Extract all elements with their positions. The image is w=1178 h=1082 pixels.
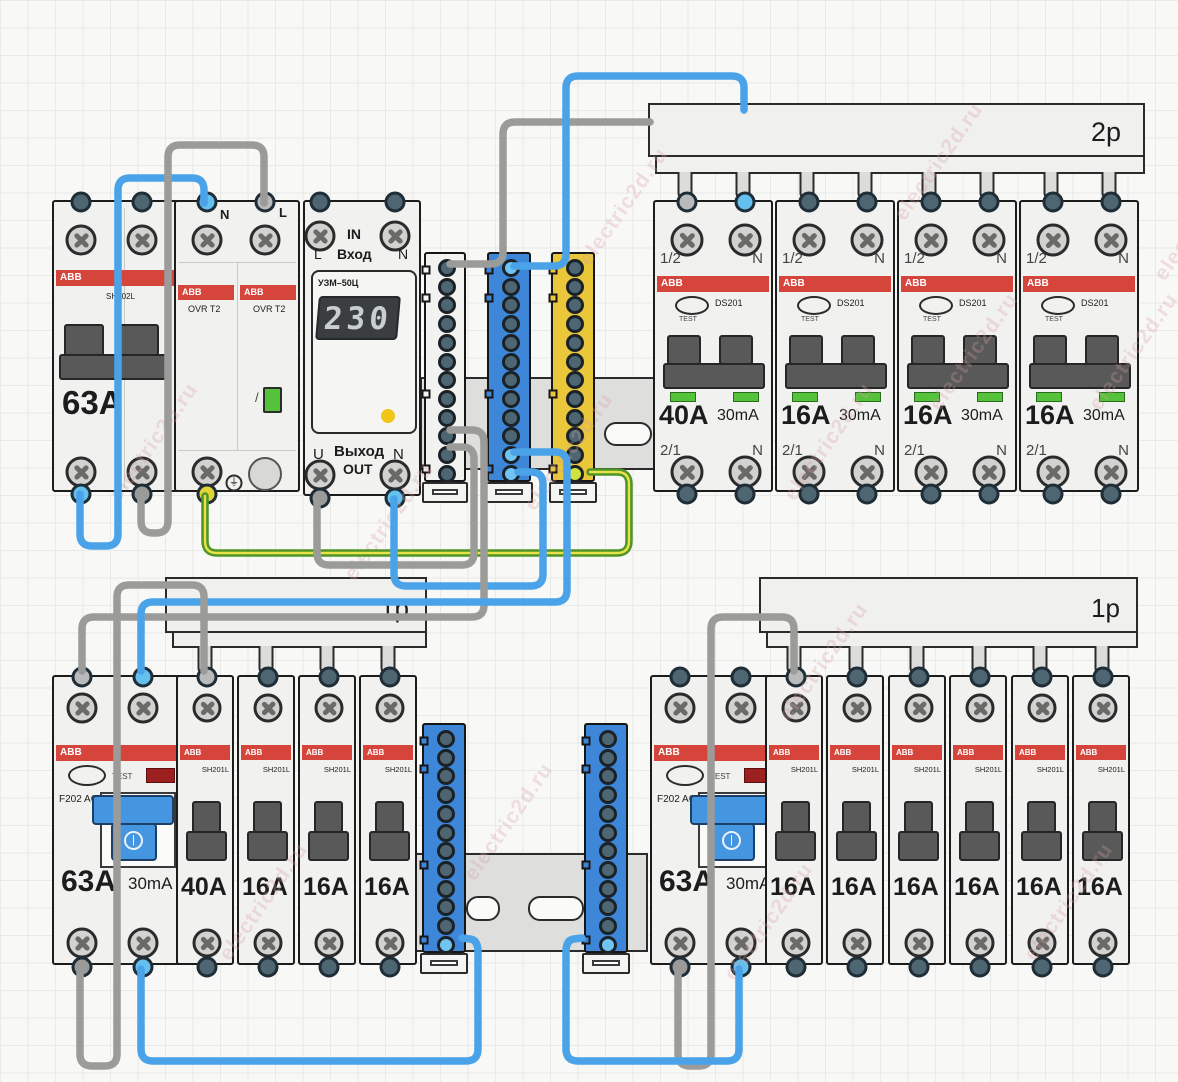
terminal-screw [193,929,222,958]
breaker-handle[interactable] [667,335,701,365]
abb-brand-band: ABB [180,745,230,760]
status-indicator [733,392,759,402]
sensitivity-label: 30mA [128,874,172,894]
busbar-terminal[interactable] [599,880,617,898]
breaker-handle-base[interactable] [663,363,765,389]
busbar-terminal[interactable] [438,353,456,371]
breaker-handle-base[interactable] [369,831,410,861]
breaker-handle-base[interactable] [959,831,1000,861]
model-label: OVR T2 [253,304,285,314]
terminal-cap[interactable] [799,192,820,213]
busbar-terminal[interactable] [437,936,455,954]
rating-label: 63A [62,384,123,422]
strip-notch [420,765,429,774]
top-left-terminal-label: 1/2 [1026,250,1047,267]
breaker-sh201l-left-3[interactable]: ABB SH201L 16A [298,675,356,965]
breaker-sh201l-right-6[interactable]: ABB SH201L 16A [1072,675,1130,965]
foot-slot [559,489,587,495]
model-label: УЗМ–50Ц [318,278,358,288]
terminal-cap[interactable] [979,484,1000,505]
breaker-handle[interactable] [963,335,997,365]
terminal-cap[interactable] [132,192,153,213]
rcbo-ds201-2[interactable]: 1/2 N ABB TEST DS201 16A 30mA 2/1 N [775,200,895,492]
rating-label: 63A [659,865,714,899]
abb-brand-band: ABB [241,745,291,760]
breaker-sh201l-left-2[interactable]: ABB SH201L 16A [237,675,295,965]
abb-brand-band: ABB [1015,745,1065,760]
rcbo-ds201-1[interactable]: 1/2 N ABB TEST DS201 40A 30mA 2/1 N [653,200,773,492]
busbar-terminal[interactable] [502,371,520,389]
busbar-terminal[interactable] [438,465,456,483]
rcd-f202-left[interactable]: ABB TEST F202 AC | 63A 30mA [52,675,195,965]
terminal-cap[interactable] [735,484,756,505]
rating-label: 16A [781,400,831,431]
abb-brand-band: ABB [240,285,296,300]
breaker-handle[interactable] [64,324,104,356]
terminal-screw [66,225,97,256]
terminal-cap[interactable] [258,957,279,978]
bottom-left-terminal-label: 2/1 [1026,442,1047,459]
busbar-terminal[interactable] [599,786,617,804]
terminal-screw [1089,694,1118,723]
terminal-screw [128,928,159,959]
breaker-handle[interactable] [789,335,823,365]
sensitivity-label: 30mA [839,407,881,425]
terminal-cap[interactable] [847,957,868,978]
model-label: SH201L [975,765,1002,774]
panel-diagram-canvas: 2p 1p 1p ABB SH202L 63A N L ABB [0,0,1178,1082]
comb-busbar-1p-right[interactable]: 1p [759,577,1138,633]
test-label: TEST [1045,316,1063,323]
busbar-terminal[interactable] [437,898,455,916]
rating-label: 40A [659,400,709,431]
test-button[interactable] [68,765,106,786]
earth-symbol: ⏚ [226,475,243,492]
terminal-cap[interactable] [1032,957,1053,978]
rating-label: 16A [1077,873,1123,902]
comb-busbar-1p-right-lip [766,631,1138,648]
busbar-terminal[interactable] [438,334,456,352]
breaker-sh201l-right-3[interactable]: ABB SH201L 16A [888,675,946,965]
strip-notch [485,390,494,399]
indicator-mark: / [255,390,259,405]
busbar-terminal[interactable] [502,390,520,408]
busbar-terminal[interactable] [502,334,520,352]
status-indicator [1099,392,1125,402]
in-ru-label: Вход [337,246,372,262]
model-label: SH201L [202,765,229,774]
abb-brand-band: ABB [769,745,819,760]
status-led [381,409,395,423]
busbar-terminal[interactable] [502,296,520,314]
foot-slot [432,489,458,495]
out-ru-label: Выход [334,443,384,460]
busbar-terminal[interactable] [437,824,455,842]
terminal-cap[interactable] [1093,957,1114,978]
strip-notch [422,465,431,474]
strip-notch [582,737,591,746]
handle-screw: | [722,831,741,850]
bottom-right-terminal-label: N [874,442,885,459]
strip-notch [549,390,558,399]
top-right-terminal-label: N [874,250,885,267]
breaker-sh201l-right-5[interactable]: ABB SH201L 16A [1011,675,1069,965]
sensitivity-label: 30mA [726,874,770,894]
busbar-terminal[interactable] [438,409,456,427]
breaker-handle-base[interactable] [186,831,227,861]
busbar-terminal[interactable] [599,767,617,785]
module-divider [237,262,238,450]
breaker-handle[interactable] [314,801,343,833]
relay-panel [311,270,417,434]
rating-label: 16A [770,873,816,902]
busbar-terminal[interactable] [566,315,584,333]
terminal-screw [67,928,98,959]
breaker-handle-base[interactable] [1082,831,1123,861]
strip-notch [422,294,431,303]
breaker-handle[interactable] [192,801,221,833]
strip-notch [549,294,558,303]
breaker-handle[interactable] [842,801,871,833]
breaker-sh201l-right-4[interactable]: ABB SH201L 16A [949,675,1007,965]
rcd-handle[interactable] [690,795,772,825]
busbar-terminal[interactable] [566,296,584,314]
breaker-handle[interactable] [375,801,404,833]
breaker-sh201l-left-1[interactable]: ABB SH201L 40A [176,675,234,965]
busbar-terminal[interactable] [438,371,456,389]
strip-notch [485,294,494,303]
busbar-terminal[interactable] [566,259,584,277]
terminal-cap[interactable] [921,484,942,505]
status-indicator [855,392,881,402]
busbar-terminal[interactable] [566,390,584,408]
model-label: OVR T2 [188,304,220,314]
top-left-terminal-label: 1/2 [904,250,925,267]
abb-brand-band: ABB [657,276,769,292]
rcbo-ds201-4[interactable]: 1/2 N ABB TEST DS201 16A 30mA 2/1 N [1019,200,1139,492]
breaker-handle[interactable] [253,801,282,833]
breaker-handle[interactable] [841,335,875,365]
busbar-terminal[interactable] [437,730,455,748]
round-knob[interactable] [248,457,282,491]
wire-l-white-strip-to-comb2p[interactable] [450,122,650,264]
model-label: SH201L [852,765,879,774]
rating-label: 16A [303,873,349,902]
breaker-handle[interactable] [911,335,945,365]
breaker-handle-base[interactable] [59,354,169,380]
terminal-cap[interactable] [1043,192,1064,213]
model-label: SH201L [1037,765,1064,774]
breaker-handle[interactable] [1085,335,1119,365]
comb-2p-label: 2p [1091,117,1121,148]
breaker-handle-base[interactable] [1021,831,1062,861]
breaker-handle-base[interactable] [308,831,349,861]
terminal-cap[interactable] [799,484,820,505]
terminal-cap[interactable] [970,667,991,688]
abb-brand-band: ABB [830,745,880,760]
test-button[interactable] [675,296,709,315]
strip-notch [420,737,429,746]
busbar-terminal[interactable] [599,749,617,767]
busbar-terminal[interactable] [502,427,520,445]
rcbo-ds201-3[interactable]: 1/2 N ABB TEST DS201 16A 30mA 2/1 N [897,200,1017,492]
terminal-screw [315,694,344,723]
breaker-handle-base[interactable] [775,831,816,861]
terminal-cap[interactable] [1101,484,1122,505]
terminal-cap[interactable] [909,667,930,688]
l-terminal-label: L [279,205,287,220]
terminal-cap[interactable] [258,667,279,688]
busbar-terminal[interactable] [438,390,456,408]
rating-label: 16A [1016,873,1062,902]
terminal-screw [127,225,158,256]
abb-brand-band: ABB [1023,276,1135,292]
rating-label: 16A [831,873,877,902]
breaker-handle[interactable] [1088,801,1117,833]
busbar-terminal[interactable] [566,278,584,296]
breaker-handle[interactable] [781,801,810,833]
strip-notch [420,936,429,945]
model-label: SH201L [324,765,351,774]
strip-notch [582,861,591,870]
status-indicator-window [263,387,282,413]
busbar-terminal[interactable] [502,353,520,371]
in-label: IN [347,226,361,242]
divider [178,450,296,451]
terminal-cap[interactable] [857,192,878,213]
busbar-terminal[interactable] [437,786,455,804]
terminal-cap[interactable] [71,192,92,213]
terminal-cap[interactable] [735,192,756,213]
strip-notch [549,465,558,474]
terminal-screw [67,693,98,724]
rating-label: 16A [364,873,410,902]
breaker-handle-base[interactable] [785,363,887,389]
breaker-sh201l-right-2[interactable]: ABB SH201L 16A [826,675,884,965]
terminal-screw [843,694,872,723]
sensitivity-label: 30mA [1083,407,1125,425]
busbar-terminal[interactable] [438,315,456,333]
neutral-busbar-bottom-right[interactable] [584,723,628,953]
bottom-left-terminal-label: 2/1 [782,442,803,459]
bottom-right-terminal-label: N [996,442,1007,459]
breaker-handle-base[interactable] [907,363,1009,389]
busbar-terminal[interactable] [502,315,520,333]
busbar-terminal[interactable] [599,824,617,842]
busbar-terminal[interactable] [566,427,584,445]
abb-brand-band: ABB [779,276,891,292]
foot-slot [592,960,620,966]
terminal-cap[interactable] [921,192,942,213]
terminal-screw [250,225,281,256]
terminal-screw [966,694,995,723]
strip-notch [422,266,431,275]
neutral-busbar-bottom-left[interactable] [422,723,466,953]
handle-screw: | [124,831,143,850]
breaker-handle[interactable] [1033,335,1067,365]
busbar-terminal[interactable] [437,842,455,860]
breaker-handle-base[interactable] [247,831,288,861]
terminal-cap[interactable] [677,484,698,505]
busbar-terminal[interactable] [437,767,455,785]
terminal-cap[interactable] [1093,667,1114,688]
test-button[interactable] [1041,296,1075,315]
busbar-terminal[interactable] [566,353,584,371]
terminal-screw [376,694,405,723]
busbar-terminal[interactable] [437,749,455,767]
model-label: DS201 [1081,298,1109,308]
terminal-cap[interactable] [979,192,1000,213]
sensitivity-label: 30mA [717,407,759,425]
strip-notch [582,765,591,774]
breaker-handle-base[interactable] [898,831,939,861]
rcd-handle[interactable] [92,795,174,825]
terminal-screw [1089,929,1118,958]
model-label: SH201L [1098,765,1125,774]
terminal-cap[interactable] [786,957,807,978]
terminal-screw [966,929,995,958]
terminal-cap[interactable] [670,667,691,688]
terminal-screw [665,693,696,724]
terminal-screw [128,693,159,724]
breaker-handle[interactable] [119,324,159,356]
n-terminal-label: N [220,207,229,222]
model-label: DS201 [837,298,865,308]
bottom-right-terminal-label: N [752,442,763,459]
breaker-handle[interactable] [1027,801,1056,833]
top-left-terminal-label: 1/2 [660,250,681,267]
terminal-cap[interactable] [310,192,331,213]
abb-brand-band: ABB [302,745,352,760]
rating-label: 16A [893,873,939,902]
terminal-cap[interactable] [319,957,340,978]
foot-slot [495,489,523,495]
breaker-handle[interactable] [904,801,933,833]
top-right-terminal-label: N [996,250,1007,267]
test-label: TEST [923,316,941,323]
busbar-terminal[interactable] [599,730,617,748]
terminal-cap[interactable] [857,484,878,505]
abb-brand-band: ABB [178,285,234,300]
comb-busbar-2p[interactable]: 2p [648,103,1145,157]
abb-brand-band: ABB [56,745,191,761]
voltage-display: 230 [315,296,401,340]
in-l-label: L [314,246,322,262]
sensitivity-label: 30mA [961,407,1003,425]
breaker-handle-base[interactable] [836,831,877,861]
test-button[interactable] [919,296,953,315]
bottom-left-terminal-label: 2/1 [660,442,681,459]
model-label: DS201 [959,298,987,308]
busbar-terminal[interactable] [599,898,617,916]
terminal-cap[interactable] [731,667,752,688]
terminal-screw [905,929,934,958]
terminal-screw [305,460,336,491]
terminal-screw [1028,929,1057,958]
terminal-cap[interactable] [1101,192,1122,213]
terminal-cap[interactable] [385,192,406,213]
busbar-terminal[interactable] [437,880,455,898]
watermark-text: electric2d.ru [1150,159,1178,286]
busbar-terminal[interactable] [599,861,617,879]
busbar-terminal[interactable] [566,371,584,389]
terminal-screw [905,694,934,723]
strip-notch [422,390,431,399]
model-label: SH201L [385,765,412,774]
voltage-relay-uzm50[interactable]: IN L Вход N УЗМ–50Ц 230 U Выход N OUT [303,200,421,496]
rating-label: 16A [1025,400,1075,431]
foot-slot [430,960,458,966]
busbar-terminal[interactable] [566,334,584,352]
busbar-terminal[interactable] [599,917,617,935]
busbar-terminal[interactable] [502,278,520,296]
pe-busbar-yellow[interactable] [551,252,595,482]
busbar-terminal[interactable] [437,805,455,823]
model-label: DS201 [715,298,743,308]
busbar-terminal[interactable] [502,409,520,427]
status-indicator [977,392,1003,402]
abb-brand-band: ABB [953,745,1003,760]
breaker-handle-base[interactable] [1029,363,1131,389]
bottom-right-terminal-label: N [1118,442,1129,459]
abb-brand-band: ABB [363,745,413,760]
rating-label: 40A [181,873,227,902]
top-left-terminal-label: 1/2 [782,250,803,267]
din-rail-bottom-slot-left [466,896,500,921]
comb-1p-right-label: 1p [1091,593,1120,624]
rating-label: 16A [954,873,1000,902]
terminal-cap[interactable] [847,667,868,688]
comb-busbar-2p-lip [655,155,1145,174]
model-label: SH201L [914,765,941,774]
terminal-cap[interactable] [380,957,401,978]
breaker-sh201l-left-4[interactable]: ABB SH201L 16A [359,675,417,965]
out-label: OUT [343,461,373,477]
terminal-screw [782,694,811,723]
terminal-cap[interactable] [677,192,698,213]
terminal-screw [1028,694,1057,723]
terminal-screw [192,225,223,256]
rating-label: 63A [61,865,116,899]
terminal-cap[interactable] [970,957,991,978]
busbar-terminal[interactable] [566,409,584,427]
busbar-terminal[interactable] [599,936,617,954]
breaker-handle[interactable] [965,801,994,833]
terminal-cap[interactable] [319,667,340,688]
terminal-cap[interactable] [380,667,401,688]
test-button[interactable] [797,296,831,315]
test-button[interactable] [666,765,704,786]
surge-protector-ovr-t2[interactable]: N L ABB ABB OVR T2 OVR T2 / ⏚ [174,200,300,492]
abb-brand-band: ABB [1076,745,1126,760]
neutral-busbar-top[interactable] [487,252,531,482]
breaker-sh201l-right-1[interactable]: ABB SH201L 16A [765,675,823,965]
terminal-cap[interactable] [1043,484,1064,505]
terminal-cap[interactable] [1032,667,1053,688]
busbar-terminal[interactable] [438,278,456,296]
terminal-cap[interactable] [909,957,930,978]
busbar-terminal[interactable] [599,805,617,823]
breaker-handle[interactable] [719,335,753,365]
busbar-terminal[interactable] [438,296,456,314]
busbar-terminal[interactable] [437,861,455,879]
abb-brand-band: ABB [901,276,1013,292]
busbar-terminal[interactable] [599,842,617,860]
terminal-cap[interactable] [197,957,218,978]
busbar-terminal[interactable] [437,917,455,935]
abb-brand-band: ABB [892,745,942,760]
terminal-screw [380,460,411,491]
